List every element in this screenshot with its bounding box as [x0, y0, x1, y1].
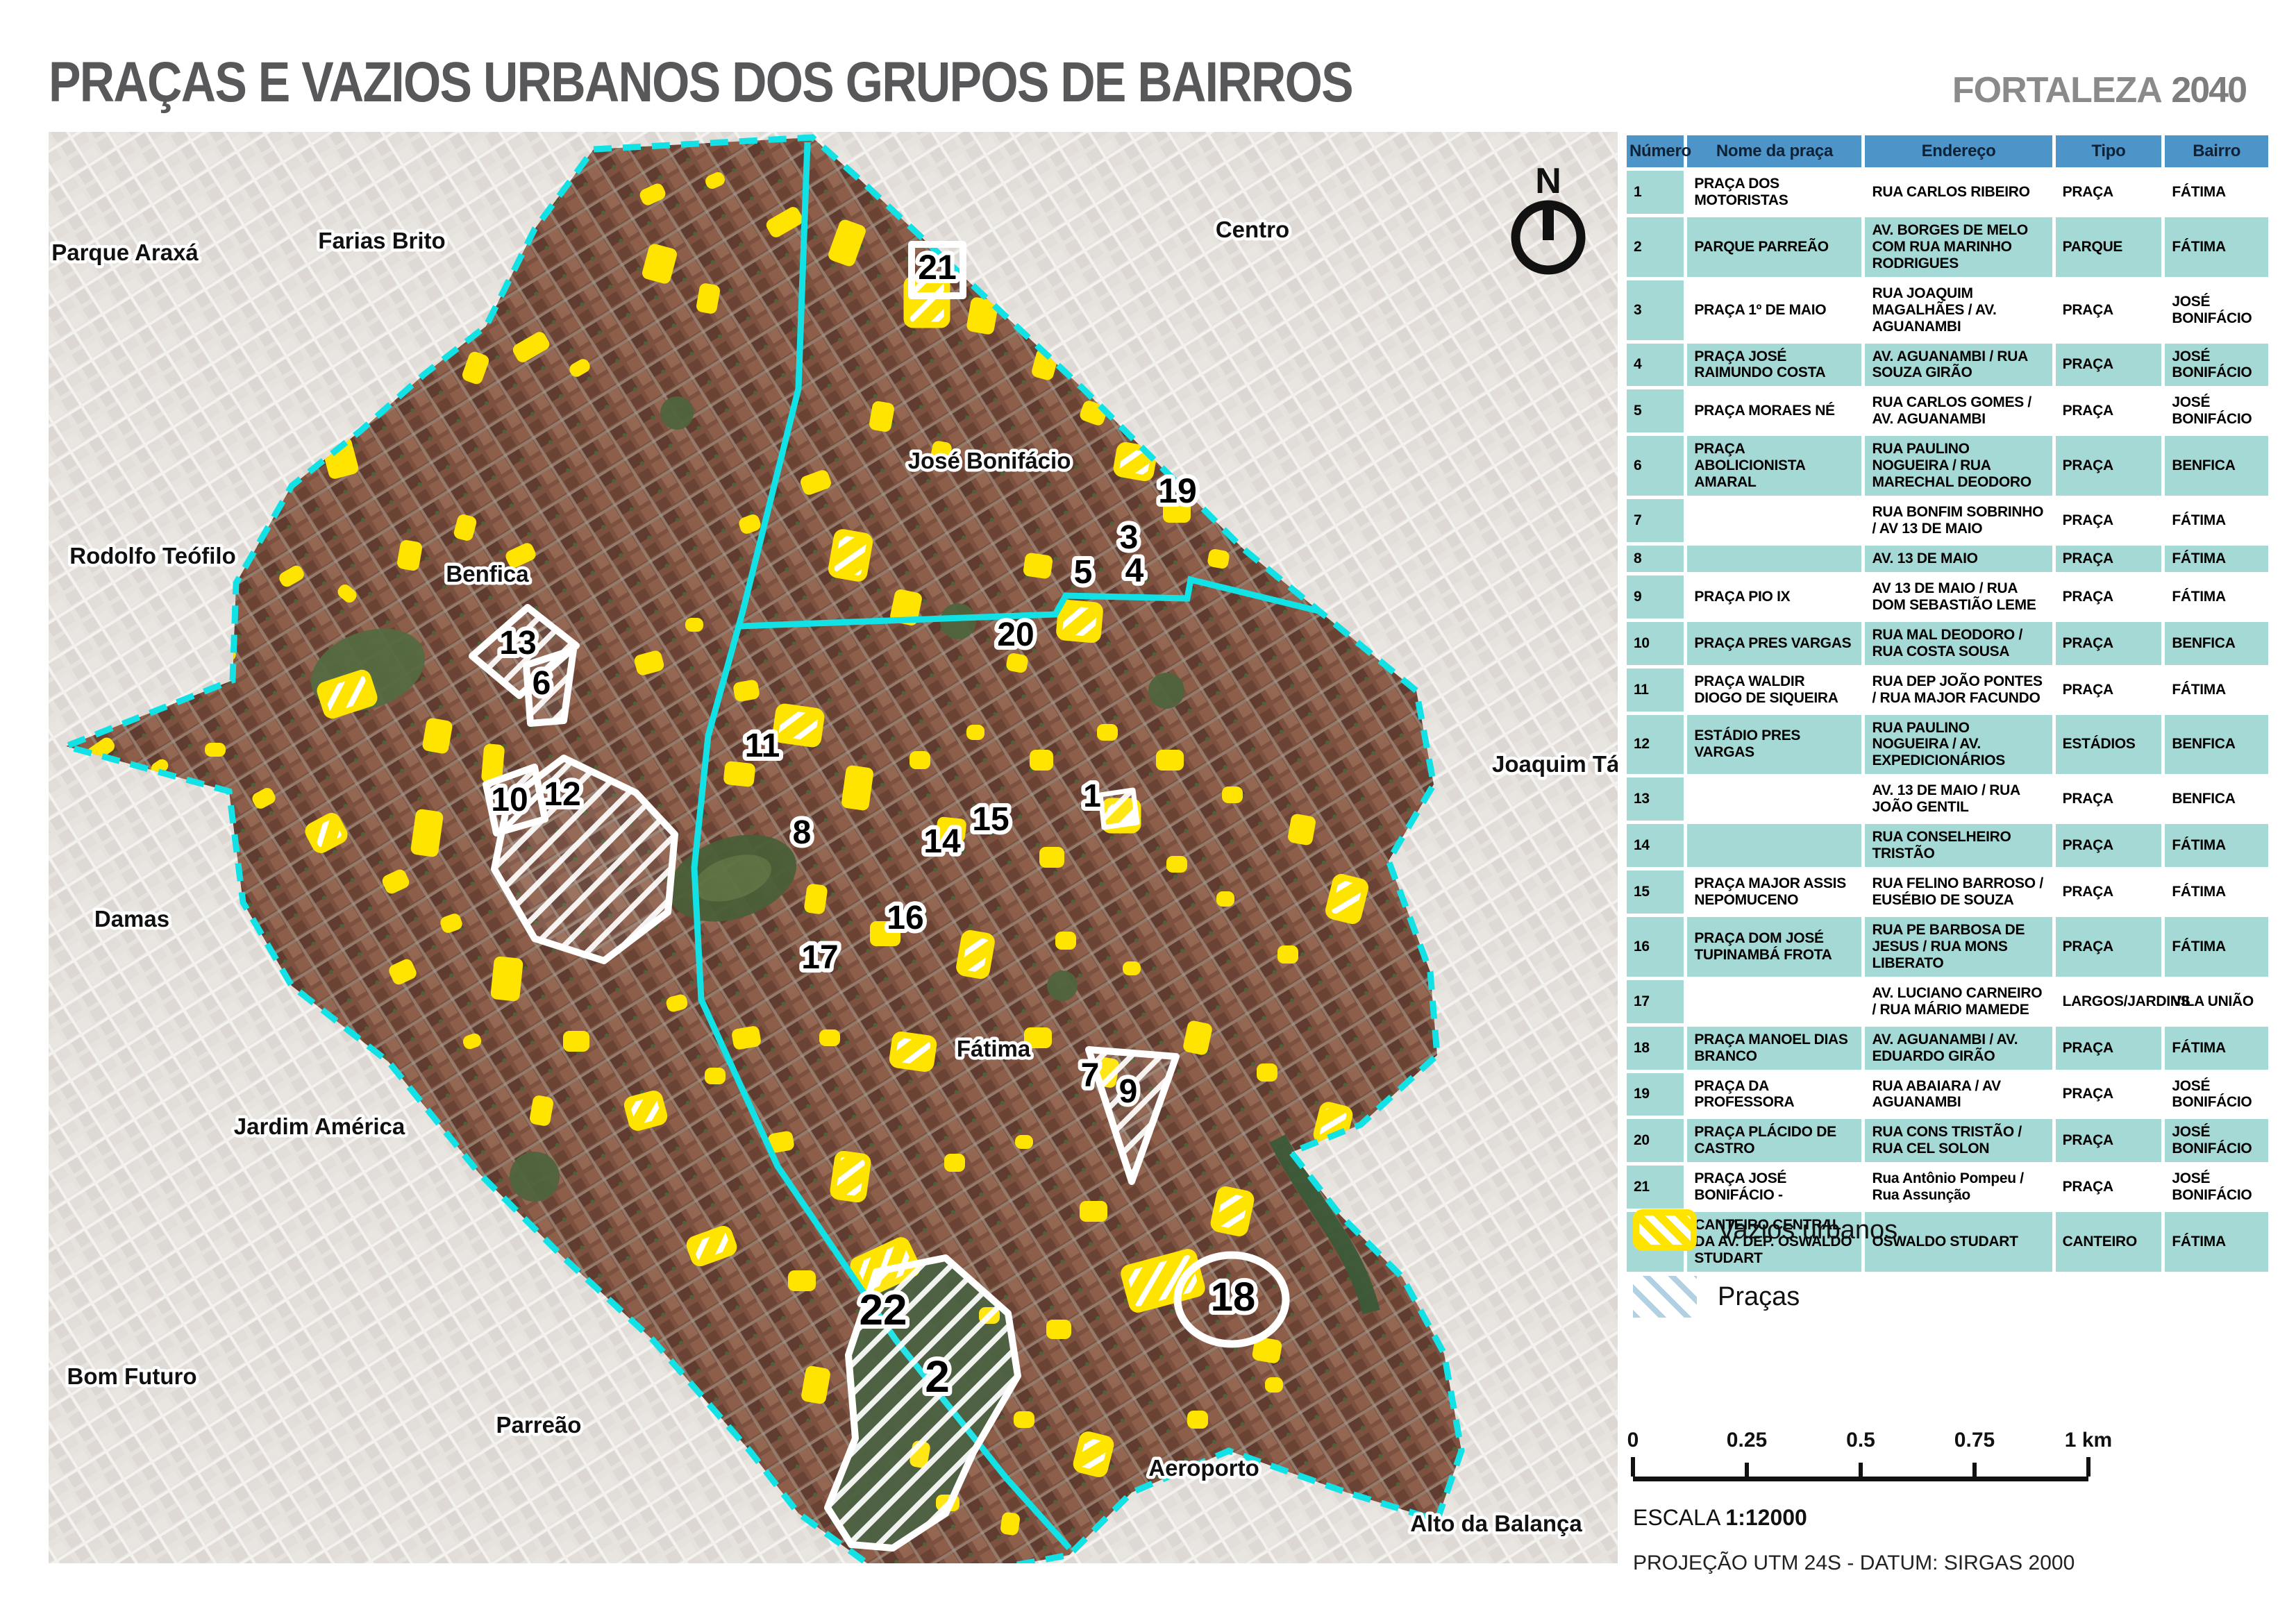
vazio-urbano-shape: [788, 1270, 816, 1291]
cell-bairro: BENFICA: [2165, 777, 2268, 821]
cell-numero: 19: [1627, 1073, 1684, 1116]
vazio-urbano-shape: [1156, 750, 1184, 771]
cell-tipo: PRAÇA: [2056, 917, 2162, 977]
cell-endereco: RUA DEP JOÃO PONTES / RUA MAJOR FACUNDO: [1865, 668, 2052, 712]
cell-bairro: FÁTIMA: [2165, 575, 2268, 619]
vazio-urbano-shape: [1014, 1411, 1034, 1428]
praca-shape: [1100, 790, 1137, 827]
place-label: Centro: [1216, 217, 1289, 242]
cell-endereco: RUA PE BARBOSA DE JESUS / RUA MONS LIBER…: [1865, 917, 2052, 977]
pracas-swatch-icon: [1633, 1276, 1697, 1318]
cell-nome: [1687, 546, 1861, 572]
cell-endereco: RUA CONSELHEIRO TRISTÃO: [1865, 824, 2052, 867]
scale-tick: [1745, 1463, 1749, 1477]
brand-name: FORTALEZA: [1952, 70, 2162, 110]
cell-numero: 12: [1627, 715, 1684, 775]
cell-numero: 3: [1627, 280, 1684, 340]
scale-bar-line: [1633, 1461, 2088, 1481]
place-label: Alto da Balança: [1410, 1511, 1582, 1536]
cell-nome: [1687, 777, 1861, 821]
cell-numero: 8: [1627, 546, 1684, 572]
cell-nome: PRAÇA PRES VARGAS: [1687, 622, 1861, 665]
cell-endereco: RUA BONFIM SOBRINHO / AV 13 DE MAIO: [1865, 499, 2052, 542]
table-row: 2PARQUE PARREÃOAV. BORGES DE MELO COM RU…: [1627, 217, 2268, 277]
cell-tipo: PRAÇA: [2056, 546, 2162, 572]
cell-nome: PRAÇA MANOEL DIAS BRANCO: [1687, 1027, 1861, 1070]
map-marker: 2: [925, 1352, 950, 1402]
table-row: 21PRAÇA JOSÉ BONIFÁCIO -Rua Antônio Pomp…: [1627, 1166, 2268, 1209]
table-row: 15PRAÇA MAJOR ASSIS NEPOMUCENORUA FELINO…: [1627, 871, 2268, 914]
vazio-urbano-shape: [819, 1029, 840, 1046]
vazio-urbano-shape: [1187, 1411, 1208, 1429]
place-label: Benfica: [446, 561, 529, 587]
cell-bairro: FÁTIMA: [2165, 217, 2268, 277]
legend: Vazios urbanos Praças: [1633, 1209, 1897, 1343]
map-marker: 6: [533, 665, 551, 702]
vazio-urbano-shape: [966, 725, 984, 740]
map-marker: 1: [1083, 777, 1101, 814]
cell-numero: 17: [1627, 980, 1684, 1023]
cell-tipo: PARQUE: [2056, 217, 2162, 277]
map-marker: 10: [491, 782, 528, 818]
cell-tipo: PRAÇA: [2056, 280, 2162, 340]
table-row: 14RUA CONSELHEIRO TRISTÃOPRAÇAFÁTIMA: [1627, 824, 2268, 867]
map-marker: 20: [997, 616, 1034, 653]
vazio-urbano-shape: [1059, 603, 1100, 641]
page-title: PRAÇAS E VAZIOS URBANOS DOS GRUPOS DE BA…: [49, 50, 1352, 115]
cell-nome: [1687, 499, 1861, 542]
vazios-swatch-icon: [1633, 1209, 1697, 1251]
pracas-table-wrap: NúmeroNome da praçaEndereçoTipoBairro 1P…: [1623, 132, 2272, 1275]
scale-tick-label: 0.5: [1846, 1429, 1875, 1452]
vazio-urbano-shape: [723, 761, 755, 787]
cell-nome: PRAÇA MORAES NÉ: [1687, 389, 1861, 432]
vazio-urbano-shape: [563, 1031, 589, 1052]
table-row: 3PRAÇA 1º DE MAIORUA JOAQUIM MAGALHÃES /…: [1627, 280, 2268, 340]
column-header: Bairro: [2165, 135, 2268, 167]
map-marker: 8: [793, 814, 812, 851]
table-header-row: NúmeroNome da praçaEndereçoTipoBairro: [1627, 135, 2268, 167]
cell-numero: 16: [1627, 917, 1684, 977]
table-row: 8AV. 13 DE MAIOPRAÇAFÁTIMA: [1627, 546, 2268, 572]
vazio-urbano-shape: [1075, 1433, 1112, 1476]
table-row: 20PRAÇA PLÁCIDO DE CASTRORUA CONS TRISTÃ…: [1627, 1119, 2268, 1162]
map-svg: N Parque AraxáFarias BritoCentroRodolfo …: [49, 132, 1618, 1563]
cell-numero: 9: [1627, 575, 1684, 619]
cell-tipo: CANTEIRO: [2056, 1212, 2162, 1272]
legend-item-pracas: Praças: [1633, 1276, 1897, 1318]
scale-tick: [1631, 1457, 1635, 1477]
cell-nome: [1687, 824, 1861, 867]
scale-tick-label: 0.25: [1727, 1429, 1767, 1452]
vazio-urbano-shape: [803, 883, 828, 915]
table-row: 17AV. LUCIANO CARNEIRO / RUA MÁRIO MAMED…: [1627, 980, 2268, 1023]
cell-numero: 11: [1627, 668, 1684, 712]
vazio-urbano-shape: [841, 765, 874, 811]
cell-bairro: FÁTIMA: [2165, 171, 2268, 214]
vazio-urbano-shape: [1023, 552, 1053, 579]
map-marker: 21: [918, 248, 957, 287]
poster-page: PRAÇAS E VAZIOS URBANOS DOS GRUPOS DE BA…: [0, 0, 2296, 1623]
cell-numero: 18: [1627, 1027, 1684, 1070]
scale-tick: [1859, 1463, 1863, 1477]
satellite-map: N Parque AraxáFarias BritoCentroRodolfo …: [49, 132, 1618, 1563]
cell-tipo: PRAÇA: [2056, 622, 2162, 665]
vazio-urbano-shape: [1166, 856, 1187, 873]
cell-bairro: FÁTIMA: [2165, 917, 2268, 977]
vazio-urbano-shape: [910, 751, 930, 769]
place-label: José Bonifácio: [908, 448, 1071, 473]
place-label: Rodolfo Teófilo: [69, 543, 236, 569]
vazio-urbano-shape: [944, 1154, 965, 1172]
cell-endereco: RUA JOAQUIM MAGALHÃES / AV. AGUANAMBI: [1865, 280, 2052, 340]
cell-bairro: FÁTIMA: [2165, 1212, 2268, 1272]
map-marker: 22: [860, 1286, 907, 1334]
escala-value: 1:12000: [1725, 1505, 1807, 1530]
cell-bairro: BENFICA: [2165, 622, 2268, 665]
cell-bairro: FÁTIMA: [2165, 1027, 2268, 1070]
table-row: 12ESTÁDIO PRES VARGASRUA PAULINO NOGUEIR…: [1627, 715, 2268, 775]
cell-tipo: PRAÇA: [2056, 824, 2162, 867]
place-label: Aeroporto: [1148, 1455, 1259, 1481]
table-row: 16PRAÇA DOM JOSÉ TUPINAMBÁ FROTARUA PE B…: [1627, 917, 2268, 977]
scale-tick: [2086, 1457, 2090, 1477]
cell-numero: 14: [1627, 824, 1684, 867]
cell-endereco: RUA PAULINO NOGUEIRA / RUA MARECHAL DEOD…: [1865, 436, 2052, 496]
cell-endereco: AV. AGUANAMBI / RUA SOUZA GIRÃO: [1865, 344, 2052, 387]
cell-bairro: FÁTIMA: [2165, 546, 2268, 572]
brand-year: 2040: [2171, 70, 2246, 110]
cell-tipo: PRAÇA: [2056, 668, 2162, 712]
vazio-urbano-shape: [1080, 1201, 1107, 1222]
cell-tipo: PRAÇA: [2056, 1027, 2162, 1070]
place-label: Parque Araxá: [51, 239, 199, 265]
cell-bairro: JOSÉ BONIFÁCIO: [2165, 389, 2268, 432]
cell-nome: PRAÇA PIO IX: [1687, 575, 1861, 619]
cell-numero: 21: [1627, 1166, 1684, 1209]
legend-label: Praças: [1718, 1282, 1800, 1312]
map-marker: 13: [499, 625, 536, 662]
cell-nome: [1687, 980, 1861, 1023]
table-row: 7RUA BONFIM SOBRINHO / AV 13 DE MAIOPRAÇ…: [1627, 499, 2268, 542]
place-label: Farias Brito: [318, 228, 445, 253]
cell-nome: ESTÁDIO PRES VARGAS: [1687, 715, 1861, 775]
cell-endereco: RUA FELINO BARROSO / EUSÉBIO DE SOUZA: [1865, 871, 2052, 914]
cell-bairro: FÁTIMA: [2165, 871, 2268, 914]
map-marker: 16: [887, 900, 923, 936]
table-row: 5PRAÇA MORAES NÉRUA CARLOS GOMES / AV. A…: [1627, 389, 2268, 432]
cell-nome: PRAÇA DA PROFESSORA: [1687, 1073, 1861, 1116]
brand-logo: FORTALEZA 2040: [1952, 69, 2246, 111]
cell-tipo: ESTÁDIOS: [2056, 715, 2162, 775]
vazio-urbano-shape: [775, 706, 822, 745]
cell-nome: PRAÇA ABOLICIONISTA AMARAL: [1687, 436, 1861, 496]
vazio-urbano-shape: [205, 743, 226, 757]
table-row: 1PRAÇA DOS MOTORISTASRUA CARLOS RIBEIROP…: [1627, 171, 2268, 214]
legend-label: Vazios urbanos: [1718, 1216, 1897, 1245]
column-header: Nome da praça: [1687, 135, 1861, 167]
cell-tipo: PRAÇA: [2056, 389, 2162, 432]
cell-bairro: JOSÉ BONIFÁCIO: [2165, 1119, 2268, 1162]
projection-text: PROJEÇÃO UTM 24S - DATUM: SIRGAS 2000: [1633, 1551, 2119, 1575]
cell-nome: PRAÇA 1º DE MAIO: [1687, 280, 1861, 340]
cell-bairro: BENFICA: [2165, 715, 2268, 775]
table-row: 4PRAÇA JOSÉ RAIMUNDO COSTAAV. AGUANAMBI …: [1627, 344, 2268, 387]
map-marker: 12: [544, 776, 580, 813]
cell-endereco: RUA MAL DEODORO / RUA COSTA SOUSA: [1865, 622, 2052, 665]
column-header: Endereço: [1865, 135, 2052, 167]
cell-numero: 5: [1627, 389, 1684, 432]
vazio-urbano-shape: [958, 932, 992, 977]
escala-label: ESCALA: [1633, 1505, 1720, 1530]
cell-tipo: PRAÇA: [2056, 1073, 2162, 1116]
cell-numero: 6: [1627, 436, 1684, 496]
cell-numero: 13: [1627, 777, 1684, 821]
map-marker: 19: [1158, 471, 1197, 510]
table-row: 6PRAÇA ABOLICIONISTA AMARALRUA PAULINO N…: [1627, 436, 2268, 496]
vazio-urbano-shape: [1015, 1135, 1033, 1149]
vazio-urbano-shape: [1046, 1320, 1071, 1339]
vazio-urbano-shape: [1097, 724, 1118, 741]
cell-numero: 10: [1627, 622, 1684, 665]
cell-bairro: FÁTIMA: [2165, 824, 2268, 867]
cell-nome: PRAÇA JOSÉ RAIMUNDO COSTA: [1687, 344, 1861, 387]
scale-tick-label: 0: [1627, 1429, 1639, 1452]
vazio-urbano-shape: [685, 618, 703, 632]
cell-numero: 20: [1627, 1119, 1684, 1162]
vazio-urbano-shape: [832, 1153, 869, 1200]
cell-endereco: AV. LUCIANO CARNEIRO / RUA MÁRIO MAMEDE: [1865, 980, 2052, 1023]
cell-endereco: AV. 13 DE MAIO: [1865, 546, 2052, 572]
map-marker: 3: [1120, 519, 1139, 556]
vazio-urbano-shape: [1055, 932, 1076, 950]
vazio-urbano-shape: [1222, 787, 1243, 803]
cell-bairro: JOSÉ BONIFÁCIO: [2165, 344, 2268, 387]
cell-endereco: AV 13 DE MAIO / RUA DOM SEBASTIÃO LEME: [1865, 575, 2052, 619]
map-marker: 5: [1074, 554, 1093, 591]
place-label: Joaquim Távo: [1492, 751, 1618, 777]
place-label: Fátima: [957, 1036, 1031, 1061]
cell-nome: PRAÇA WALDIR DIOGO DE SIQUEIRA: [1687, 668, 1861, 712]
table-row: 10PRAÇA PRES VARGASRUA MAL DEODORO / RUA…: [1627, 622, 2268, 665]
cell-bairro: VILA UNIÃO: [2165, 980, 2268, 1023]
cell-bairro: FÁTIMA: [2165, 499, 2268, 542]
vazio-urbano-shape: [705, 1068, 726, 1084]
vazio-urbano-shape: [1277, 945, 1298, 964]
vazio-urbano-shape: [626, 1093, 665, 1129]
cell-bairro: JOSÉ BONIFÁCIO: [2165, 1166, 2268, 1209]
cell-tipo: PRAÇA: [2056, 1119, 2162, 1162]
compass-n-label: N: [1535, 161, 1561, 201]
cell-tipo: PRAÇA: [2056, 777, 2162, 821]
scale-tick: [1972, 1463, 1977, 1477]
scale-tick-label: 0.75: [1954, 1429, 1995, 1452]
scale-tick-label: 1 km: [2065, 1429, 2112, 1452]
table-row: 19PRAÇA DA PROFESSORARUA ABAIARA / AV AG…: [1627, 1073, 2268, 1116]
table-row: 18PRAÇA MANOEL DIAS BRANCOAV. AGUANAMBI …: [1627, 1027, 2268, 1070]
cell-bairro: FÁTIMA: [2165, 668, 2268, 712]
place-label: Bom Futuro: [67, 1363, 197, 1389]
vazio-urbano-shape: [1039, 847, 1064, 868]
escala-text: ESCALA 1:12000: [1633, 1505, 2119, 1531]
vazio-urbano-shape: [1257, 1063, 1277, 1082]
vazio-urbano-shape: [1265, 1377, 1283, 1393]
table-row: 13AV. 13 DE MAIO / RUA JOÃO GENTILPRAÇAB…: [1627, 777, 2268, 821]
cell-numero: 4: [1627, 344, 1684, 387]
vazio-urbano-shape: [1216, 891, 1234, 907]
map-marker: 4: [1125, 553, 1144, 589]
vazio-urbano-shape: [1030, 750, 1053, 771]
cell-numero: 2: [1627, 217, 1684, 277]
place-label: Jardim América: [234, 1113, 405, 1139]
cell-bairro: BENFICA: [2165, 436, 2268, 496]
vazio-urbano-shape: [1212, 1188, 1252, 1234]
column-header: Tipo: [2056, 135, 2162, 167]
scale-bar: 00.250.50.751 km ESCALA 1:12000 PROJEÇÃO…: [1633, 1429, 2119, 1575]
cell-tipo: PRAÇA: [2056, 1166, 2162, 1209]
cell-endereco: AV. 13 DE MAIO / RUA JOÃO GENTIL: [1865, 777, 2052, 821]
cell-bairro: JOSÉ BONIFÁCIO: [2165, 1073, 2268, 1116]
cell-numero: 1: [1627, 171, 1684, 214]
vazio-urbano-shape: [1287, 813, 1317, 846]
cell-nome: PARQUE PARREÃO: [1687, 217, 1861, 277]
cell-tipo: PRAÇA: [2056, 871, 2162, 914]
vazio-urbano-shape: [490, 956, 523, 1002]
pracas-table: NúmeroNome da praçaEndereçoTipoBairro 1P…: [1623, 132, 2272, 1275]
cell-nome: PRAÇA DOS MOTORISTAS: [1687, 171, 1861, 214]
place-label: Damas: [94, 906, 169, 932]
cell-tipo: LARGOS/JARDINS: [2056, 980, 2162, 1023]
vazio-urbano-shape: [1327, 876, 1367, 923]
map-marker: 15: [972, 801, 1009, 838]
vazio-urbano-shape: [830, 531, 871, 579]
table-row: 11PRAÇA WALDIR DIOGO DE SIQUEIRARUA DEP …: [1627, 668, 2268, 712]
cell-nome: PRAÇA MAJOR ASSIS NEPOMUCENO: [1687, 871, 1861, 914]
cell-endereco: RUA CARLOS GOMES / AV. AGUANAMBI: [1865, 389, 2052, 432]
cell-tipo: PRAÇA: [2056, 499, 2162, 542]
legend-item-vazios: Vazios urbanos: [1633, 1209, 1897, 1251]
cell-tipo: PRAÇA: [2056, 575, 2162, 619]
map-marker: 18: [1211, 1275, 1256, 1320]
cell-numero: 7: [1627, 499, 1684, 542]
cell-numero: 15: [1627, 871, 1684, 914]
place-label: Parreão: [496, 1412, 582, 1438]
map-marker: 7: [1081, 1057, 1100, 1094]
cell-tipo: PRAÇA: [2056, 344, 2162, 387]
cell-endereco: AV. BORGES DE MELO COM RUA MARINHO RODRI…: [1865, 217, 2052, 277]
cell-nome: PRAÇA JOSÉ BONIFÁCIO -: [1687, 1166, 1861, 1209]
cell-nome: PRAÇA DOM JOSÉ TUPINAMBÁ FROTA: [1687, 917, 1861, 977]
cell-tipo: PRAÇA: [2056, 171, 2162, 214]
cell-endereco: RUA CARLOS RIBEIRO: [1865, 171, 2052, 214]
map-marker: 11: [745, 728, 780, 764]
cell-endereco: Rua Antônio Pompeu / Rua Assunção: [1865, 1166, 2052, 1209]
vazio-urbano-shape: [891, 1034, 935, 1069]
map-marker: 14: [923, 823, 961, 860]
cell-bairro: JOSÉ BONIFÁCIO: [2165, 280, 2268, 340]
map-marker: 17: [801, 939, 838, 976]
scale-labels: 00.250.50.751 km: [1633, 1429, 2088, 1456]
column-header: Número: [1627, 135, 1684, 167]
cell-endereco: RUA PAULINO NOGUEIRA / AV. EXPEDICIONÁRI…: [1865, 715, 2052, 775]
cell-endereco: RUA ABAIARA / AV AGUANAMBI: [1865, 1073, 2052, 1116]
map-marker: 9: [1119, 1073, 1138, 1110]
table-row: 9PRAÇA PIO IXAV 13 DE MAIO / RUA DOM SEB…: [1627, 575, 2268, 619]
vazio-urbano-shape: [1123, 961, 1141, 975]
cell-nome: PRAÇA PLÁCIDO DE CASTRO: [1687, 1119, 1861, 1162]
cell-tipo: PRAÇA: [2056, 436, 2162, 496]
cell-endereco: AV. AGUANAMBI / AV. EDUARDO GIRÃO: [1865, 1027, 2052, 1070]
cell-endereco: RUA CONS TRISTÃO / RUA CEL SOLON: [1865, 1119, 2052, 1162]
